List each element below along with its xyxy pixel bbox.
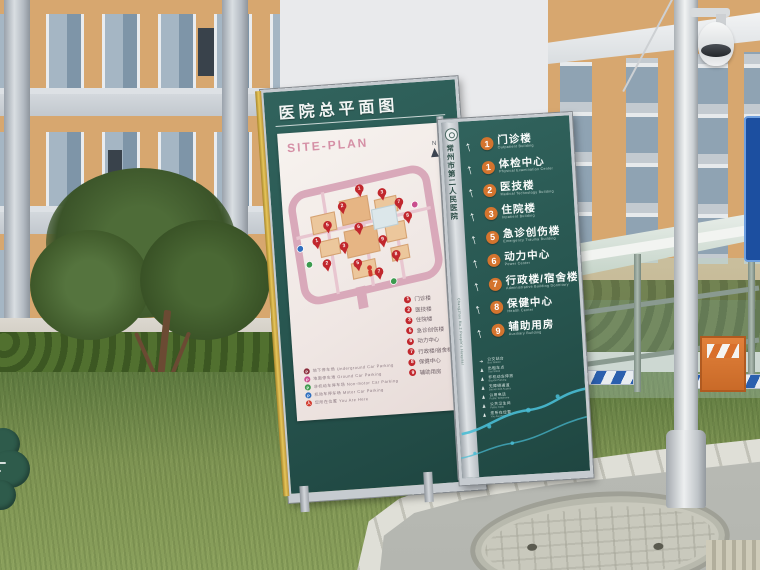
map-number-badge: 2 bbox=[405, 306, 412, 313]
map-number-badge: 3 bbox=[406, 316, 413, 323]
building-number-badge: 7 bbox=[488, 277, 502, 291]
up-arrow-icon: ↑ bbox=[473, 299, 491, 316]
parking-icon: P bbox=[305, 384, 311, 390]
map-number-badge: 6 bbox=[407, 337, 414, 344]
map-parking-legend: P地下停车场 Underground Car ParkingP地面停车场 Gro… bbox=[304, 362, 400, 408]
building-column bbox=[4, 0, 30, 352]
tactile-paving bbox=[706, 540, 760, 570]
pole-base bbox=[666, 430, 706, 508]
footer-legend-icon: ♟ bbox=[480, 377, 485, 382]
map-list-row: 6动力中心 bbox=[407, 334, 452, 345]
map-list-row: 3住院楼 bbox=[406, 313, 451, 324]
up-arrow-icon: ↑ bbox=[464, 159, 482, 176]
building-number-badge: 2 bbox=[483, 184, 497, 198]
map-number-badge: 9 bbox=[409, 369, 416, 376]
building-name-en: Emergency Trauma Building bbox=[503, 237, 561, 244]
building-name-en: Physical Examination Center bbox=[499, 167, 553, 174]
site-plan-poster: SITE-PLAN N bbox=[277, 122, 465, 421]
hospital-name-cn: 常州市第二人民医院 bbox=[444, 144, 464, 294]
up-arrow-icon: ↑ bbox=[471, 276, 489, 293]
footer-legend-icon: ➔ bbox=[479, 359, 484, 364]
map-marker-icon bbox=[306, 261, 313, 269]
parking-icon: P bbox=[305, 392, 311, 398]
map-building-name: 门诊楼 bbox=[414, 294, 431, 303]
site-plan-map: 13275861392587 bbox=[281, 146, 456, 317]
footer-legend-en: Bicycle Parking bbox=[489, 379, 514, 383]
building-name-en: Outpatient Building bbox=[498, 145, 534, 151]
building-number-badge: 1 bbox=[480, 137, 494, 151]
open-window bbox=[198, 28, 214, 76]
hospital-wayfinding-photo: 医院总平面图 SITE-PLAN N bbox=[0, 0, 760, 570]
up-arrow-icon: ↑ bbox=[468, 229, 486, 246]
footer-legend-en: Bus Station bbox=[487, 361, 504, 365]
sign-leg bbox=[299, 486, 309, 512]
up-arrow-icon: ↑ bbox=[474, 323, 492, 340]
sign-leg bbox=[423, 472, 434, 502]
building-number-badge: 3 bbox=[484, 207, 498, 221]
map-building-name: 急诊创伤楼 bbox=[416, 324, 444, 334]
directory-panel: 常州市第二人民医院 Changzhou No.2 People's Hospit… bbox=[438, 112, 593, 485]
map-list-row: 9辅助用房 bbox=[409, 366, 454, 377]
map-building-name: 动力中心 bbox=[417, 335, 440, 345]
building-name-en: Medical Technology Building bbox=[500, 190, 554, 197]
legend-label: 您所在位置 You Are Here bbox=[315, 396, 369, 406]
building-name-en: Inpatient Building bbox=[502, 215, 537, 221]
tree-foliage bbox=[140, 220, 270, 340]
blue-road-sign bbox=[744, 116, 760, 262]
building-number-badge: 9 bbox=[491, 324, 505, 338]
map-number-badge: 1 bbox=[404, 295, 411, 302]
wave-decoration bbox=[457, 383, 590, 470]
hospital-logo-icon bbox=[445, 128, 459, 142]
map-list-row: 2医技楼 bbox=[405, 303, 450, 314]
map-building-name: 辅助用房 bbox=[419, 367, 442, 377]
canopy-post bbox=[634, 254, 641, 392]
map-list-row: 7行政楼/宿舍楼 bbox=[408, 345, 453, 356]
parking-icon: P bbox=[304, 376, 310, 382]
building-name-en: Power Center bbox=[505, 261, 551, 267]
person-icon: 人 bbox=[306, 400, 312, 406]
barrier-gate-cabinet bbox=[700, 336, 746, 392]
building-number-badge: 6 bbox=[487, 254, 501, 268]
map-marker-icon bbox=[411, 201, 418, 209]
up-arrow-icon: ↑ bbox=[466, 183, 484, 200]
light-pole bbox=[674, 0, 698, 442]
map-building-name: 保健中心 bbox=[419, 356, 442, 366]
up-arrow-icon: ↑ bbox=[467, 206, 485, 223]
building-name-en: Auxiliary Building bbox=[509, 331, 555, 337]
map-building-name: 行政楼/宿舍楼 bbox=[418, 345, 453, 355]
map-number-badge: 5 bbox=[406, 327, 413, 334]
up-arrow-icon: ↑ bbox=[470, 253, 488, 270]
lawn-sign bbox=[0, 428, 38, 512]
building-number-badge: 1 bbox=[482, 160, 496, 174]
map-building-name: 医技楼 bbox=[415, 304, 432, 313]
footer-legend-row: ➔公交站台Bus Station bbox=[479, 357, 513, 365]
footer-legend-row: ♟非机动车停放Bicycle Parking bbox=[480, 375, 514, 383]
building-number-badge: 8 bbox=[490, 300, 504, 314]
footer-legend-en: Taxi Stand bbox=[488, 370, 505, 374]
footer-legend-row: ♟出租车点Taxi Stand bbox=[480, 366, 514, 374]
parking-icon: P bbox=[304, 368, 310, 374]
footer-legend-icon: ♟ bbox=[480, 368, 485, 373]
map-list-row: 1门诊楼 bbox=[404, 292, 449, 303]
map-number-badge: 8 bbox=[409, 358, 416, 365]
map-list-row: 5急诊创伤楼 bbox=[406, 324, 451, 335]
tree-foliage bbox=[30, 230, 150, 340]
map-list-row: 8保健中心 bbox=[409, 355, 454, 366]
map-number-badge: 7 bbox=[408, 348, 415, 355]
building-number-badge: 5 bbox=[486, 230, 500, 244]
map-building-name: 住院楼 bbox=[416, 315, 433, 324]
up-arrow-icon: ↑ bbox=[463, 136, 481, 153]
building-directory: ↑1门诊楼Outpatient Building↑1体检中心Physical E… bbox=[464, 127, 578, 343]
cctv-lens-band bbox=[701, 44, 731, 57]
building-name-en: Health Center bbox=[507, 308, 553, 314]
directory-row: ↑9辅助用房Auxiliary Building bbox=[475, 314, 578, 343]
